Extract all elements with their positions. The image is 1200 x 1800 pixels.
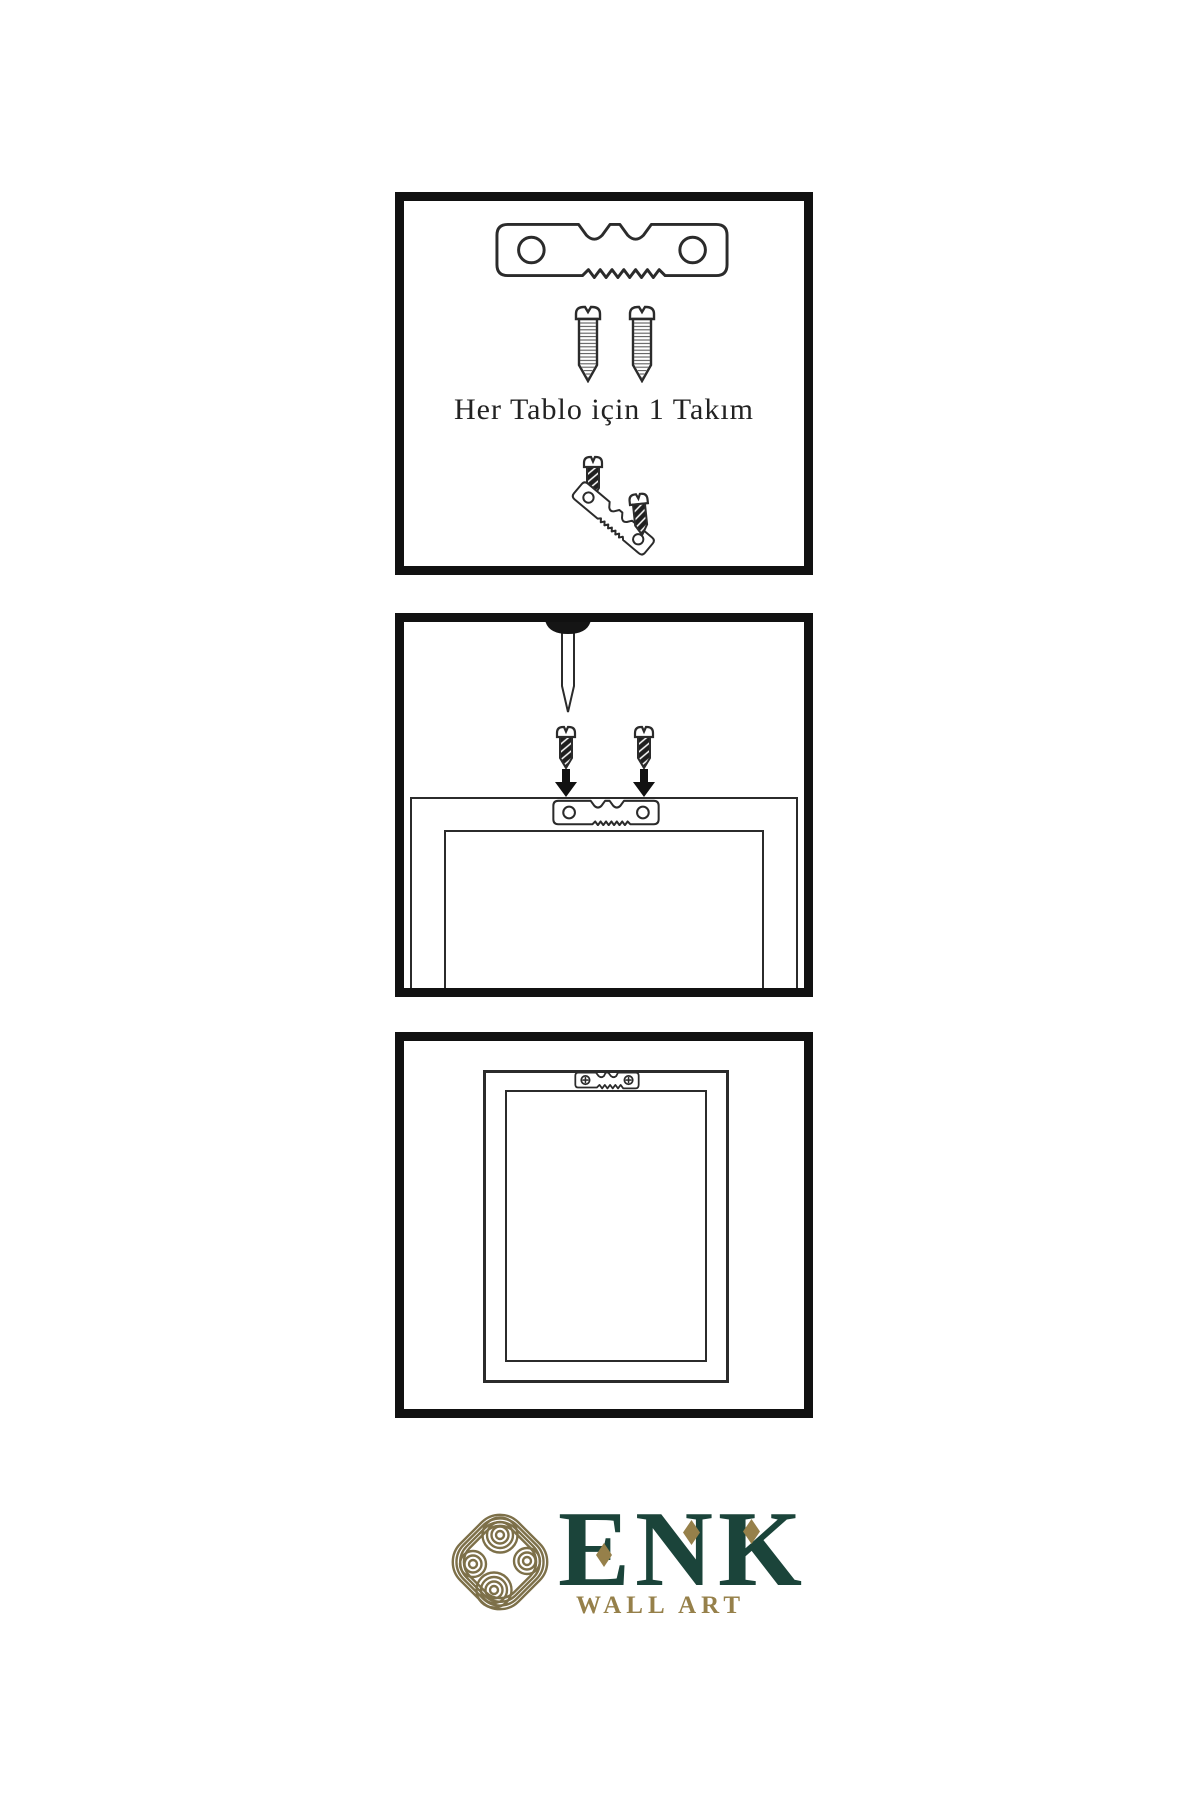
nail-icon — [544, 620, 592, 716]
dark-screw-icon — [632, 725, 656, 769]
panel-hardware-kit: Her Tablo için 1 Takım — [395, 192, 813, 575]
dark-screw-icon — [554, 725, 578, 769]
knot-icon — [440, 1500, 560, 1624]
frame-inner-edge — [505, 1090, 707, 1362]
sawtooth-hanger-mounted-icon — [574, 1071, 640, 1090]
sawtooth-hanger-icon — [552, 799, 660, 826]
panel-hung-frame — [395, 1032, 813, 1418]
screw-icon — [573, 305, 603, 383]
kit-caption: Her Tablo için 1 Takım — [404, 393, 804, 427]
dark-screw-icon — [626, 491, 654, 537]
panel-mounting-steps — [395, 613, 813, 997]
sawtooth-hanger-icon — [494, 221, 730, 279]
product-instruction-image: Her Tablo için 1 Takım — [0, 0, 1200, 1800]
arrow-down-icon — [633, 769, 655, 797]
screw-icon — [627, 305, 657, 383]
arrow-down-icon — [555, 769, 577, 797]
frame-inner-edge — [444, 830, 764, 997]
brand-tagline: WALL ART — [576, 1592, 745, 1620]
brand-wordmark: ENK — [558, 1496, 807, 1604]
